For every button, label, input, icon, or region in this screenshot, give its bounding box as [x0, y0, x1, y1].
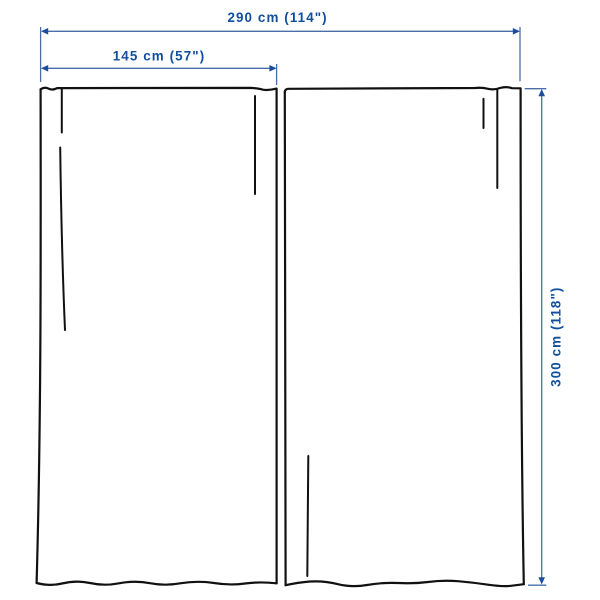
svg-text:300 cm (118"): 300 cm (118") — [549, 287, 564, 387]
svg-text:290 cm (114"): 290 cm (114") — [227, 10, 327, 25]
svg-text:145 cm (57"): 145 cm (57") — [113, 49, 206, 64]
